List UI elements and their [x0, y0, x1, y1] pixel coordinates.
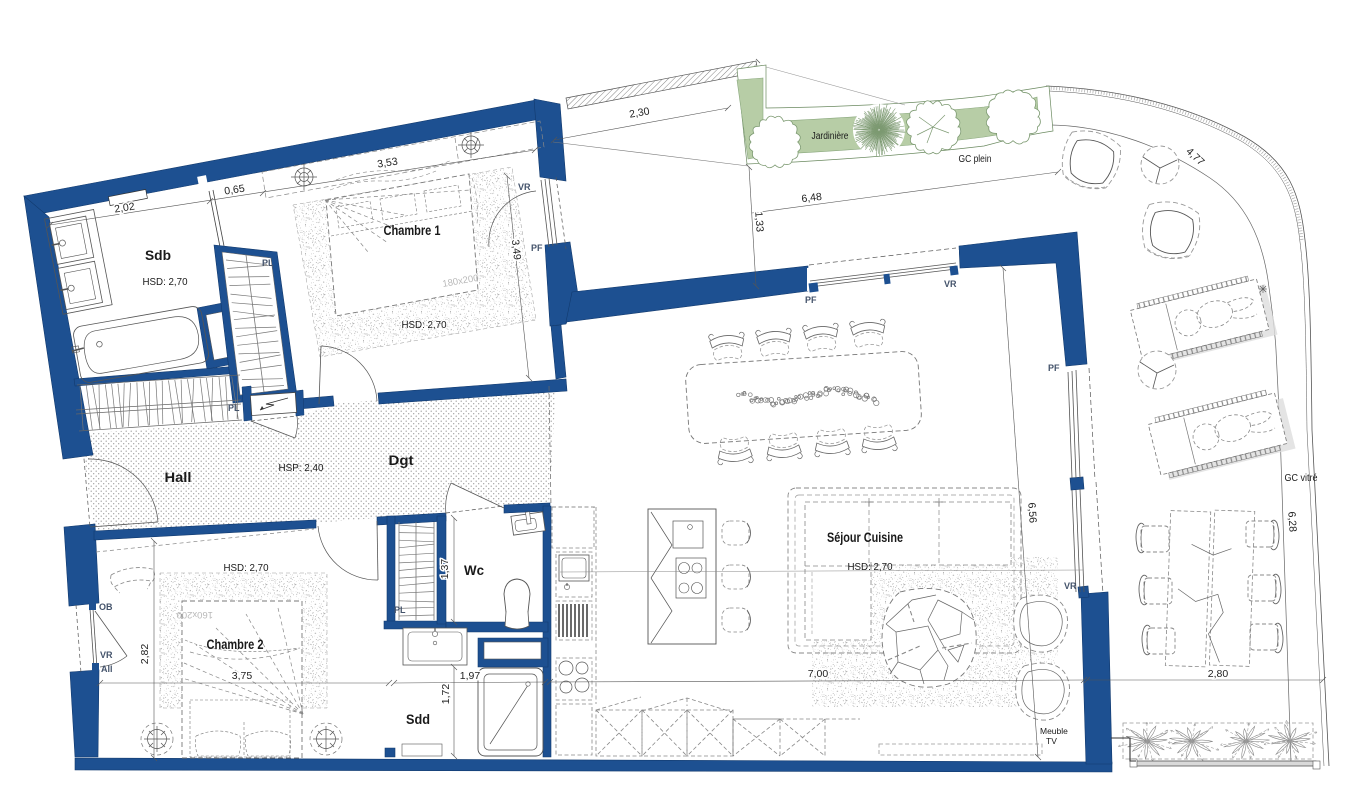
svg-text:1,33: 1,33	[752, 211, 765, 232]
svg-text:Hall: Hall	[165, 469, 192, 485]
svg-text:1,72: 1,72	[440, 684, 452, 705]
svg-text:TV: TV	[1046, 736, 1057, 746]
svg-text:2,82: 2,82	[139, 644, 151, 665]
svg-text:1,37: 1,37	[439, 559, 451, 580]
svg-text:HSD: 2,70: HSD: 2,70	[848, 561, 893, 573]
svg-text:Wc: Wc	[464, 562, 484, 578]
svg-text:Chambre 2: Chambre 2	[207, 636, 264, 652]
svg-text:2,80: 2,80	[1208, 668, 1229, 680]
svg-text:GC plein: GC plein	[959, 154, 992, 165]
svg-text:Jardinière: Jardinière	[812, 131, 849, 142]
svg-text:2,30: 2,30	[628, 105, 650, 120]
svg-text:All: All	[101, 664, 113, 674]
svg-text:PF: PF	[805, 295, 817, 305]
svg-text:Séjour Cuisine: Séjour Cuisine	[827, 529, 903, 545]
svg-text:6,28: 6,28	[1285, 511, 1298, 532]
svg-text:VR: VR	[1064, 581, 1077, 591]
svg-text:Sdd: Sdd	[406, 711, 430, 727]
svg-text:160x200: 160x200	[177, 609, 213, 620]
svg-text:VR: VR	[100, 650, 113, 660]
svg-text:Dgt: Dgt	[389, 452, 414, 468]
svg-text:Sdb: Sdb	[145, 247, 171, 263]
svg-text:6,56: 6,56	[1025, 502, 1038, 523]
svg-text:3,49: 3,49	[509, 239, 523, 261]
svg-text:PF: PF	[1048, 363, 1060, 373]
svg-text:2,02: 2,02	[113, 200, 135, 215]
svg-text:1,97: 1,97	[460, 670, 481, 682]
svg-text:HSD: 2,70: HSD: 2,70	[224, 562, 269, 574]
svg-text:6,48: 6,48	[801, 191, 823, 205]
svg-text:HSD: 2,70: HSD: 2,70	[402, 319, 447, 331]
svg-text:HSD: 2,70: HSD: 2,70	[143, 276, 188, 288]
svg-text:PL: PL	[394, 605, 406, 615]
svg-text:VR: VR	[944, 279, 957, 289]
svg-text:HSP: 2,40: HSP: 2,40	[279, 462, 324, 474]
svg-text:PF: PF	[531, 243, 543, 253]
svg-text:PL: PL	[262, 258, 274, 268]
svg-text:OB: OB	[99, 602, 113, 612]
svg-text:7,00: 7,00	[808, 668, 829, 680]
svg-text:PL: PL	[228, 403, 240, 413]
svg-text:3,53: 3,53	[376, 155, 398, 170]
svg-text:GC vitré: GC vitré	[1285, 473, 1318, 484]
svg-text:Meuble: Meuble	[1040, 726, 1068, 736]
svg-text:3,75: 3,75	[232, 670, 253, 682]
svg-text:VR: VR	[518, 182, 531, 192]
svg-text:Chambre 1: Chambre 1	[384, 222, 441, 238]
svg-text:4,77: 4,77	[1183, 145, 1206, 168]
